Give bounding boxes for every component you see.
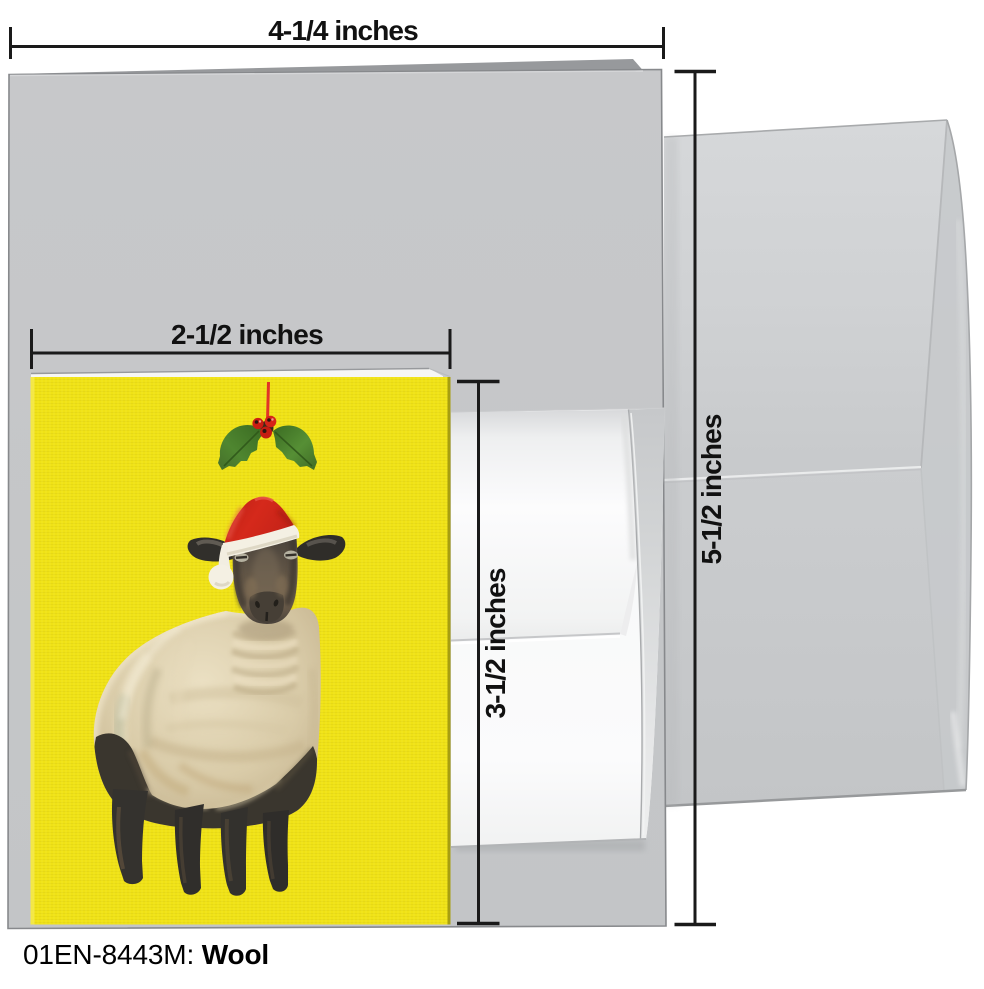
svg-text:2-1/2 inches: 2-1/2 inches bbox=[171, 319, 323, 350]
svg-text:4-1/4 inches: 4-1/4 inches bbox=[268, 15, 418, 46]
svg-text:3-1/2 inches: 3-1/2 inches bbox=[480, 568, 511, 718]
svg-text:01EN-8443M: Wool: 01EN-8443M: Wool bbox=[23, 939, 269, 970]
svg-text:5-1/2 inches: 5-1/2 inches bbox=[696, 414, 727, 564]
